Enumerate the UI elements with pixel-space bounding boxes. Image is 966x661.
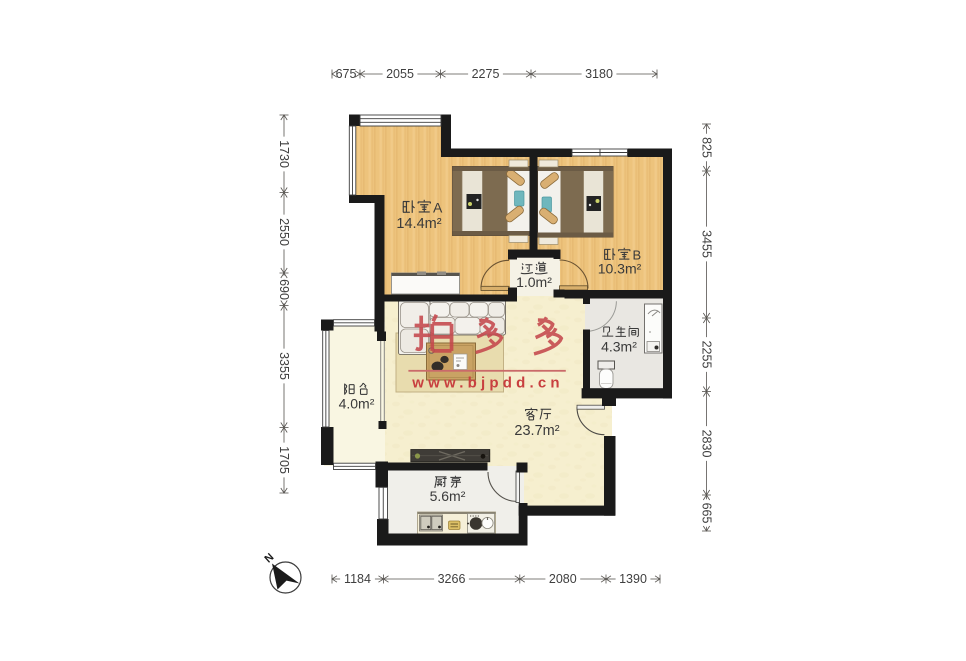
svg-text:www.bjpdd.cn: www.bjpdd.cn (411, 375, 564, 392)
svg-text:690: 690 (277, 279, 291, 300)
svg-text:3266: 3266 (438, 572, 466, 586)
svg-text:2255: 2255 (699, 341, 713, 369)
svg-text:2055: 2055 (386, 67, 414, 81)
svg-text:3180: 3180 (585, 67, 613, 81)
svg-text:4.3m²: 4.3m² (601, 339, 637, 355)
svg-text:23.7m²: 23.7m² (514, 423, 559, 439)
svg-text:14.4m²: 14.4m² (396, 216, 441, 232)
svg-text:2080: 2080 (549, 572, 577, 586)
svg-text:N: N (262, 551, 276, 565)
svg-text:2550: 2550 (277, 218, 291, 246)
svg-text:A: A (433, 200, 443, 216)
svg-text:1.0m²: 1.0m² (516, 274, 552, 290)
svg-text:2275: 2275 (472, 67, 500, 81)
svg-text:825: 825 (699, 137, 713, 158)
svg-text:1184: 1184 (344, 572, 371, 586)
svg-text:10.3m²: 10.3m² (598, 261, 642, 277)
svg-text:4.0m²: 4.0m² (339, 396, 375, 412)
svg-text:5.6m²: 5.6m² (430, 488, 466, 504)
svg-text:1390: 1390 (619, 572, 647, 586)
svg-text:1730: 1730 (277, 140, 291, 168)
svg-text:2830: 2830 (699, 430, 713, 458)
svg-text:665: 665 (699, 503, 713, 524)
svg-text:3355: 3355 (277, 352, 291, 380)
svg-text:675: 675 (336, 67, 357, 81)
svg-text:1705: 1705 (277, 446, 291, 474)
svg-text:3455: 3455 (699, 230, 713, 258)
